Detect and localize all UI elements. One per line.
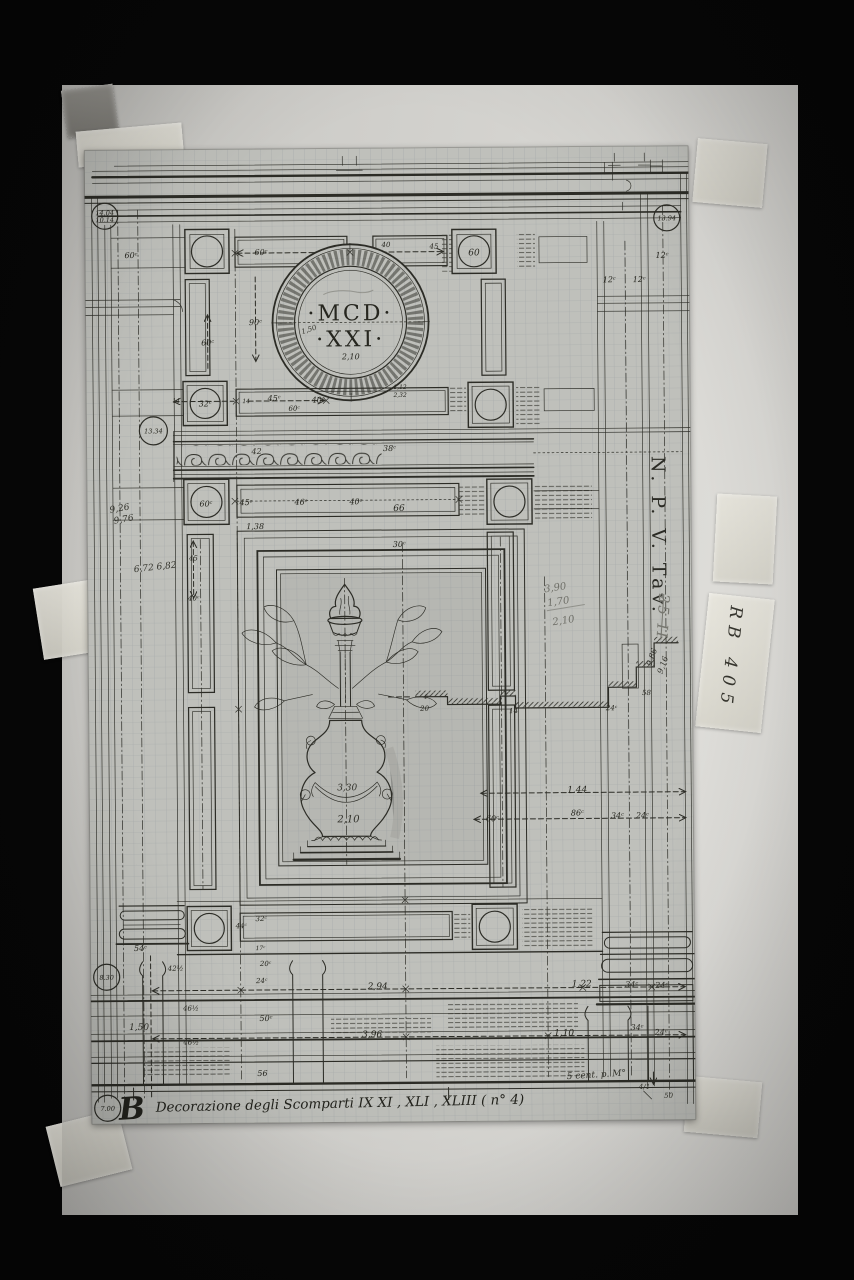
dimension-annotation: 20 [419, 705, 430, 713]
dimension-annotation: 12ᶜ [655, 251, 668, 260]
dimension-annotation: 60ᶜ [254, 248, 267, 257]
dimension-annotation: 24ᶜ [654, 981, 668, 990]
dimension-annotation: 14 [242, 398, 250, 405]
dimension-annotation: 14 [509, 707, 518, 715]
tape-right-upper [713, 493, 778, 584]
dimension-annotation: 60ᶜ [124, 251, 137, 260]
dimension-annotation: 2,94 [367, 982, 388, 992]
dimension-annotation: 46½ [182, 1005, 199, 1013]
dimension-annotation: 42 [250, 447, 261, 456]
svg-text:13.34: 13.34 [144, 427, 163, 435]
dimension-annotation: 30ᶜ [393, 540, 406, 549]
dimension-annotation: 14 [172, 398, 180, 405]
dimension-annotation: 24ᶜ [635, 811, 649, 820]
dimension-annotation: 46½ [182, 1039, 199, 1047]
dimension-annotation: 1,22 [572, 979, 592, 989]
dimension-annotation: 12ᶜ [603, 275, 616, 284]
dimension-annotation: 40ᶜ [348, 497, 362, 506]
dimension-annotation: 44ᶜ [235, 922, 248, 930]
dimension-annotation: 58 [642, 689, 652, 697]
caption-initial: B [118, 1090, 146, 1128]
dimension-annotation: 40ᶜ [311, 396, 325, 405]
dimension-annotation: 24ᶜ [255, 977, 268, 985]
dimension-annotation: 4ᶜ [422, 694, 429, 701]
dimension-annotation: 1,50 [129, 1023, 149, 1033]
dimension-annotation: 24ᶜ [654, 1028, 668, 1037]
dimension-annotation: 50 [664, 1092, 674, 1100]
plate-side-label: N. P. V. Tav. [647, 456, 670, 616]
drawing-sheet: ·MCD· ·XXI· [84, 146, 696, 1125]
plate-number-scribble: 25 II [652, 593, 673, 640]
dimension-annotation: 34ᶜ [631, 1023, 644, 1032]
dimension-annotation: 1,10 [554, 1029, 574, 1039]
dimension-annotation: 38ᶜ [383, 444, 396, 453]
dimension-annotation: 60ᶜ [201, 338, 214, 347]
dimension-annotation: 12ᶜ [633, 275, 646, 284]
svg-text:7.00: 7.00 [100, 1105, 115, 1113]
dimension-annotation: 1.44 [567, 785, 587, 795]
dimension-annotation: 86ᶜ [571, 808, 584, 817]
dimension-annotation: 2,10 [336, 814, 360, 825]
dimension-annotation: 34ᶜ [625, 980, 638, 989]
dimension-annotation: 60ᶜ [199, 499, 212, 508]
dimension-annotation: 40 [380, 241, 391, 249]
dimension-annotation: 40ᶜ [187, 594, 200, 602]
dimension-annotation: 3,30 [337, 783, 357, 793]
dimension-annotation: 1,12 [393, 384, 407, 391]
medallion-year-line1: ·MCD· [307, 301, 393, 327]
dimension-annotation: 24ᶜ [605, 704, 618, 712]
dimension-annotation: 2,10 [341, 352, 360, 361]
dimension-annotation: 42½ [167, 965, 184, 973]
svg-text:13.94: 13.94 [657, 214, 676, 222]
dimension-annotation: 17ᶜ [256, 945, 266, 952]
photo-stage: RB 405 [0, 0, 854, 1280]
tape-rb-label: RB 405 [695, 593, 775, 733]
dimension-annotation: 4/1 [638, 1083, 650, 1091]
dimension-annotation: 54ᶜ [134, 944, 147, 953]
dimension-annotation: 32ᶜ [199, 399, 212, 408]
medallion-year-line2: ·XXI· [316, 327, 385, 353]
dimension-annotation: 60 [468, 248, 480, 258]
dimension-annotation: 3,96 [362, 1030, 382, 1040]
tape-top-right [692, 138, 767, 208]
dimension-annotation: 50ᶜ [259, 1014, 272, 1023]
dimension-annotation: 2,32 [392, 392, 407, 399]
dimension-annotation: 90ᶜ [249, 318, 262, 327]
tape-archive-number: RB 405 [715, 605, 746, 712]
dimension-annotation: 45ᶜ [238, 498, 252, 507]
dimension-annotation: 45 [428, 243, 439, 251]
dimension-annotation: 1,38 [246, 522, 264, 531]
dimension-annotation: 32ᶜ [256, 915, 268, 923]
dimension-annotation: 60ᶜ [289, 405, 301, 413]
svg-text:8.30: 8.30 [99, 974, 114, 982]
dimension-annotation: 45 [188, 555, 199, 563]
medallion: ·MCD· ·XXI· [271, 243, 430, 402]
mount-board: RB 405 [62, 85, 798, 1215]
dimension-annotation: 66 [393, 504, 405, 514]
dimension-annotation: 46ᶜ [293, 498, 307, 507]
dimension-annotation: 20ᶜ [259, 960, 272, 968]
dimension-annotation: 56 [257, 1069, 267, 1078]
dimension-annotation: 34ᶜ [611, 811, 624, 820]
drawing-linework: ·MCD· ·XXI· [84, 146, 696, 1125]
dimension-annotation: 60ᶜ [486, 814, 499, 823]
svg-text:14.0410.14: 14.0410.14 [95, 209, 114, 224]
dimension-annotation: 45ᶜ [267, 394, 281, 403]
